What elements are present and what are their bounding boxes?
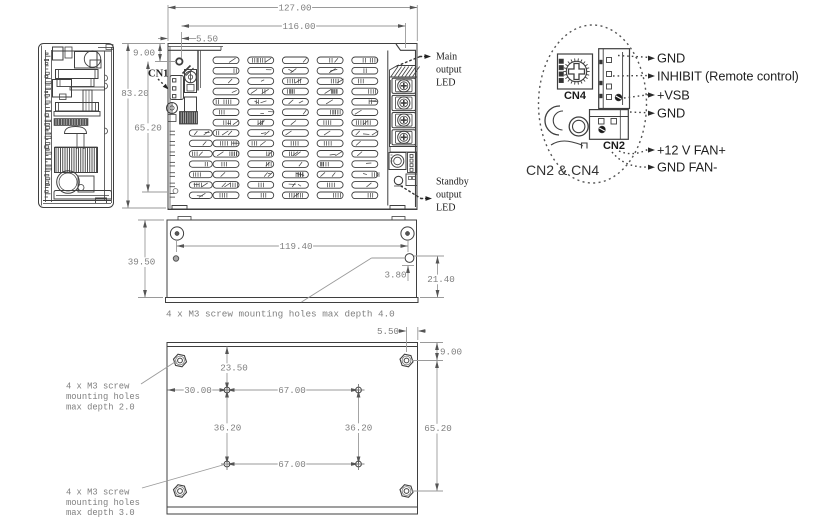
svg-text:39.50: 39.50 bbox=[128, 257, 156, 268]
svg-text:max depth 2.0: max depth 2.0 bbox=[66, 403, 135, 413]
svg-text:mounting holes: mounting holes bbox=[66, 392, 140, 402]
svg-text:9.00: 9.00 bbox=[440, 347, 462, 358]
svg-text:LED: LED bbox=[436, 78, 455, 89]
svg-text:4 x M3 screw: 4 x M3 screw bbox=[66, 382, 130, 392]
svg-text:output: output bbox=[436, 190, 462, 201]
svg-text:output: output bbox=[436, 65, 462, 76]
svg-text:Main: Main bbox=[436, 52, 457, 63]
svg-text:30.00: 30.00 bbox=[184, 385, 212, 396]
svg-text:GND FAN-: GND FAN- bbox=[657, 160, 717, 175]
svg-text:65.20: 65.20 bbox=[424, 423, 452, 434]
svg-text:+12 V FAN+: +12 V FAN+ bbox=[657, 142, 726, 157]
svg-text:CN2 & CN4: CN2 & CN4 bbox=[526, 162, 599, 178]
svg-text:CN4: CN4 bbox=[564, 90, 587, 102]
svg-text:116.00: 116.00 bbox=[282, 21, 315, 32]
svg-text:4 x M3 screw mounting holes ma: 4 x M3 screw mounting holes max depth 4.… bbox=[166, 309, 395, 320]
svg-text:36.20: 36.20 bbox=[214, 423, 242, 434]
svg-text:5.50: 5.50 bbox=[377, 326, 399, 337]
svg-text:LED: LED bbox=[436, 203, 455, 214]
svg-text:23.50: 23.50 bbox=[220, 363, 248, 374]
svg-text:67.00: 67.00 bbox=[278, 385, 306, 396]
svg-text:INHIBIT (Remote control): INHIBIT (Remote control) bbox=[657, 68, 799, 83]
svg-text:9.00: 9.00 bbox=[133, 48, 155, 59]
svg-text:+VSB: +VSB bbox=[657, 87, 690, 102]
svg-text:127.00: 127.00 bbox=[278, 3, 311, 14]
svg-text:5.50: 5.50 bbox=[196, 34, 218, 45]
svg-text:65.20: 65.20 bbox=[134, 123, 162, 134]
svg-text:36.20: 36.20 bbox=[345, 423, 373, 434]
svg-text:max depth 3.0: max depth 3.0 bbox=[66, 508, 135, 518]
svg-text:3.80: 3.80 bbox=[384, 270, 406, 281]
svg-text:83.20: 83.20 bbox=[121, 88, 149, 99]
svg-text:119.40: 119.40 bbox=[279, 241, 312, 252]
svg-text:4 x M3 screw: 4 x M3 screw bbox=[66, 488, 130, 498]
svg-text:CN1: CN1 bbox=[148, 69, 168, 80]
svg-text:mounting holes: mounting holes bbox=[66, 498, 140, 508]
svg-text:Standby: Standby bbox=[436, 177, 469, 188]
svg-text:CN2: CN2 bbox=[603, 140, 625, 152]
svg-text:67.00: 67.00 bbox=[278, 459, 306, 470]
svg-text:GND: GND bbox=[657, 106, 685, 121]
svg-text:GND: GND bbox=[657, 51, 685, 66]
svg-text:21.40: 21.40 bbox=[427, 274, 455, 285]
